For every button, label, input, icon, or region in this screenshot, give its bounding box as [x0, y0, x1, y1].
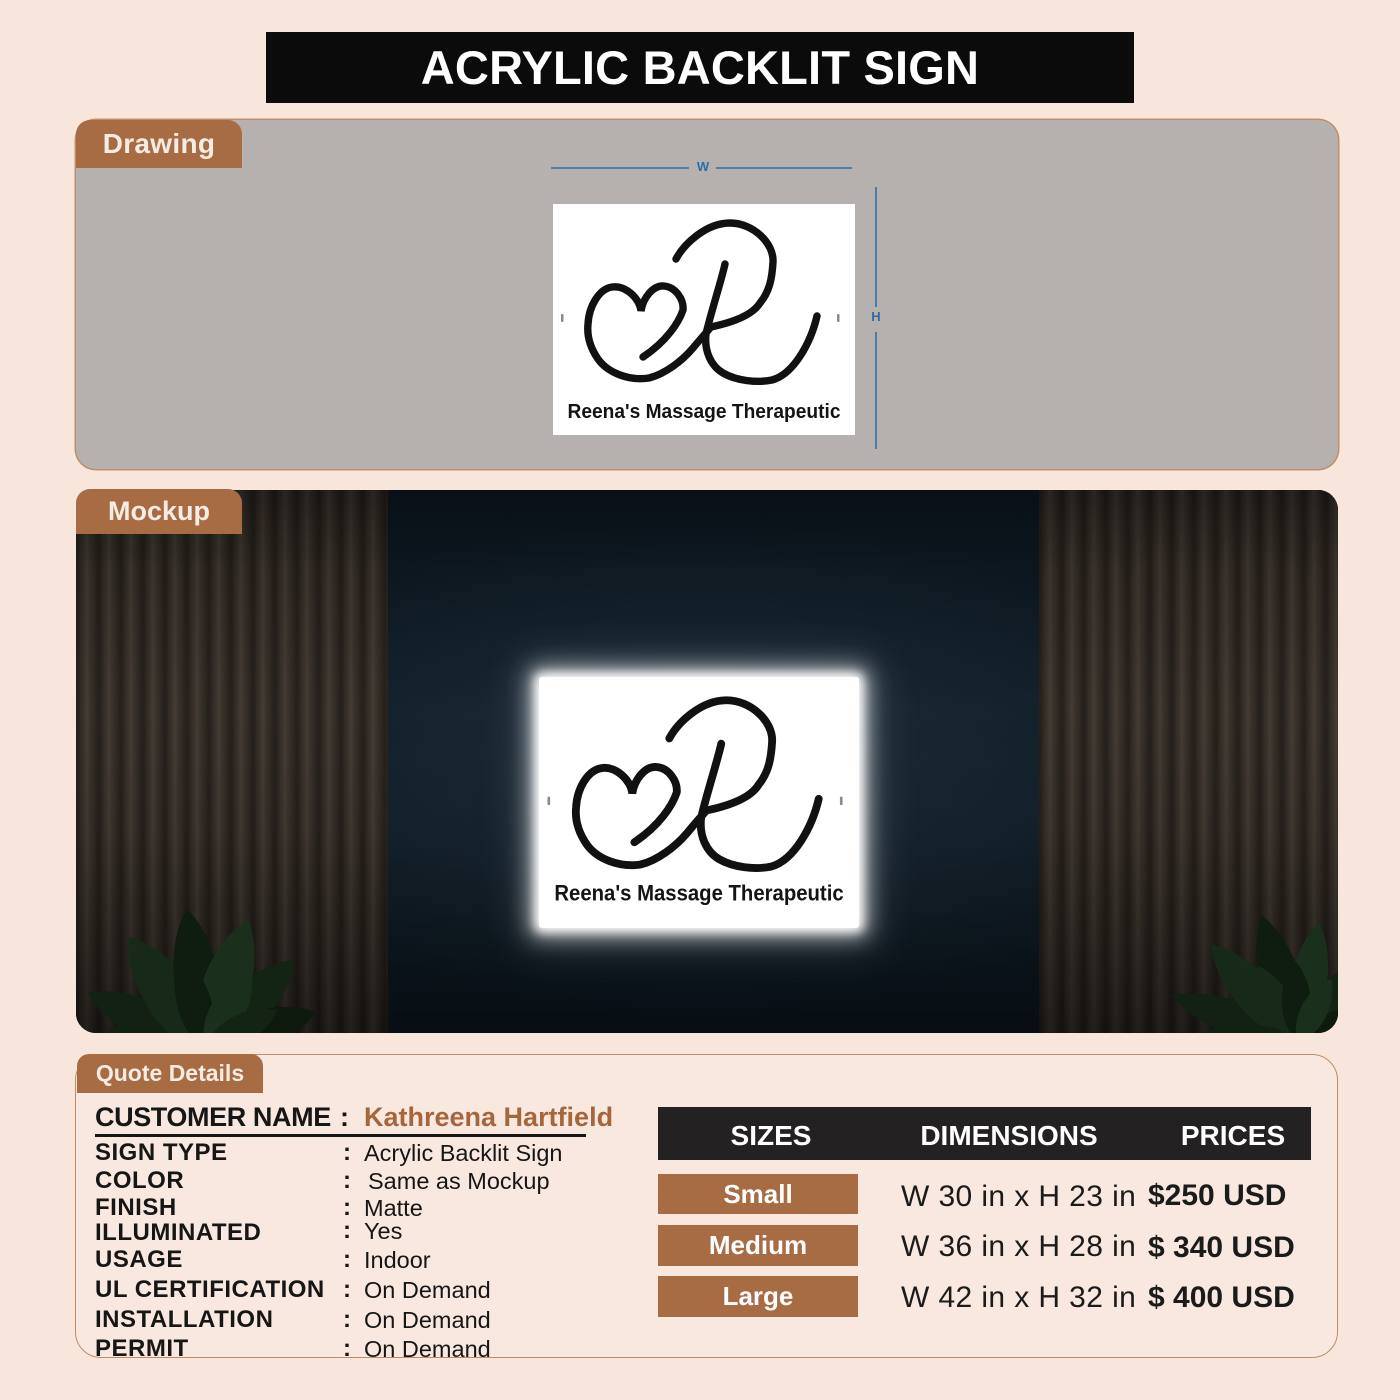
svg-text:Reena's Massage Therapeutic: Reena's Massage Therapeutic	[568, 400, 841, 423]
svg-text:Reena's Massage Therapeutic: Reena's Massage Therapeutic	[554, 881, 843, 906]
